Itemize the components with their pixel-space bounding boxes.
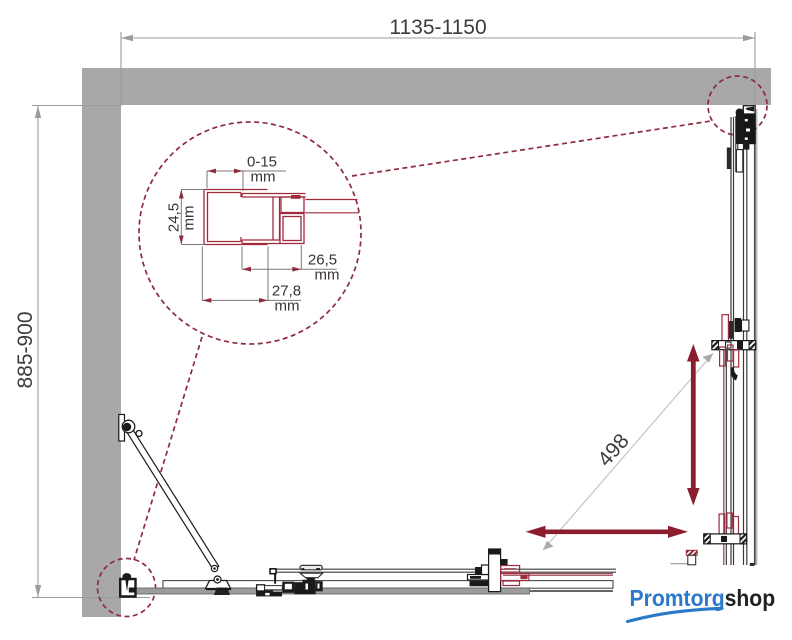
svg-text:mm: mm (181, 206, 198, 231)
svg-text:885-900: 885-900 (14, 311, 37, 388)
svg-text:mm: mm (315, 267, 340, 284)
svg-text:498: 498 (593, 429, 633, 471)
svg-text:1135-1150: 1135-1150 (389, 16, 486, 39)
svg-text:Promtorgshop: Promtorgshop (630, 585, 776, 611)
svg-text:mm: mm (275, 298, 300, 315)
svg-text:mm: mm (251, 169, 276, 186)
